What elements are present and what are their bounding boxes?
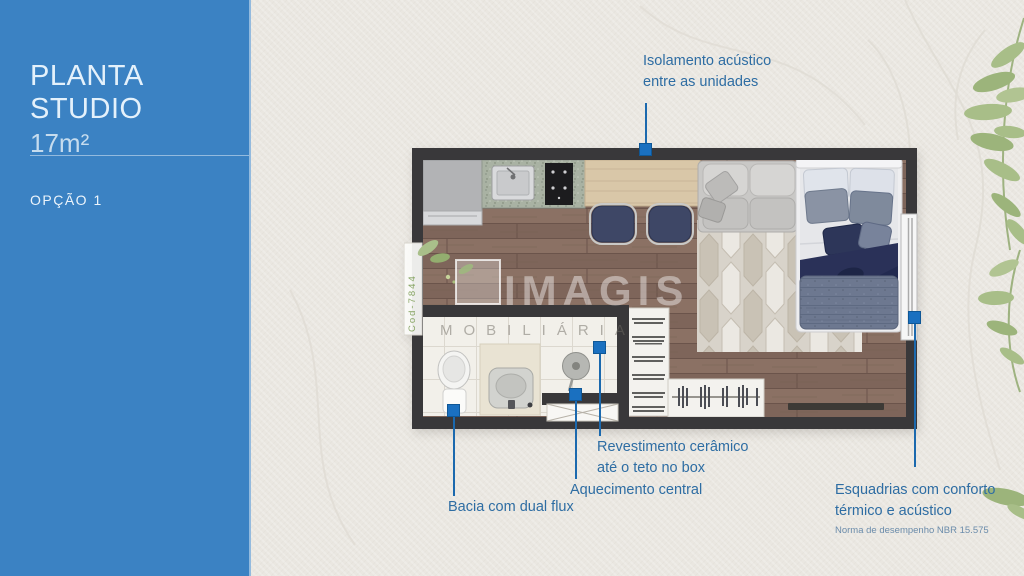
watermark-code: Cod-7844 [407,274,418,332]
pointer-line-aquecimento [575,401,577,479]
entry-door [547,404,618,421]
pointer-line-revestimento [599,354,601,436]
annotation-line: até o teto no box [597,458,749,479]
annotation-bacia: Bacia com dual flux [448,497,574,518]
bathroom-sink [480,344,540,415]
annotation-isolamento: Isolamento acústico entre as unidades [643,51,771,93]
stool [647,204,693,244]
pointer-line-bacia [453,417,455,496]
annotation-line: entre as unidades [643,72,771,93]
pointer-marker-revestimento [593,341,606,354]
bed-duvet [800,276,898,329]
fridge [423,211,482,225]
pointer-marker-esquadrias [908,311,921,324]
counter-table [585,160,700,206]
annotation-note: Norma de desempenho NBR 15.575 [835,525,995,537]
option-label: OPÇÃO 1 [30,192,103,208]
page-title: PLANTA STUDIO [30,60,251,126]
pointer-marker-isolamento [639,143,652,156]
pointer-marker-aquecimento [569,388,582,401]
annotation-line: Bacia com dual flux [448,497,574,518]
annotation-line: Aquecimento central [570,480,702,501]
headboard [796,159,902,168]
sofa [697,161,797,232]
annotation-revestimento: Revestimento cerâmico até o teto no box [597,437,749,479]
stool [590,204,636,244]
sidebar: PLANTA STUDIO 17m² OPÇÃO 1 [0,0,251,576]
watermark-subtitle: MOBILIÁRIA [440,322,636,339]
floor-plan: Cod-7844 IMAGIS MOBILIÁRIA [404,140,925,429]
divider [30,155,249,156]
watermark-brand: IMAGIS [504,267,689,314]
annotation-line: Revestimento cerâmico [597,437,749,458]
slide: PLANTA STUDIO 17m² OPÇÃO 1 [0,0,1024,576]
hanging-wardrobe [668,379,764,417]
annotation-line: térmico e acústico [835,501,995,522]
annotation-line: Isolamento acústico [643,51,771,72]
pointer-marker-bacia [447,404,460,417]
pointer-line-isolamento [645,103,647,143]
pointer-line-esquadrias [914,324,916,467]
tv-console [788,403,884,410]
annotation-aquecimento: Aquecimento central [570,480,702,501]
annotation-line: Esquadrias com conforto [835,480,995,501]
annotation-esquadrias: Esquadrias com conforto térmico e acústi… [835,480,995,537]
bed [796,159,902,332]
